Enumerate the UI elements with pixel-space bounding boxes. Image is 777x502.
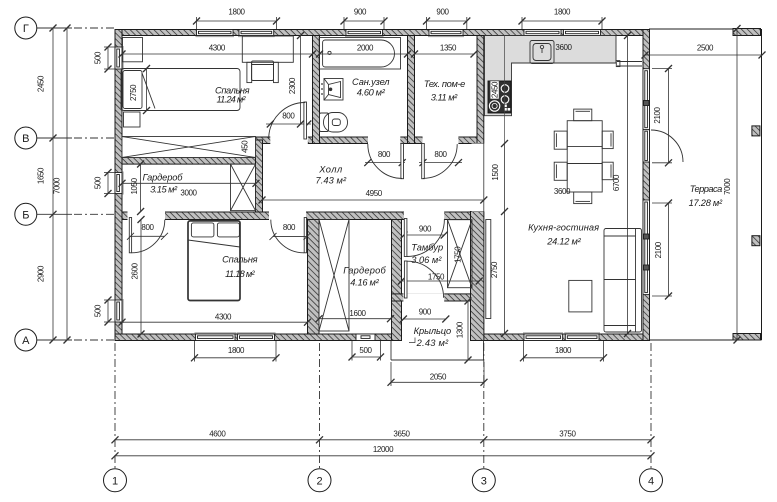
svg-text:7000: 7000 (53, 177, 62, 194)
svg-text:1600: 1600 (349, 309, 366, 318)
svg-text:Б: Б (22, 209, 29, 221)
svg-text:2500: 2500 (697, 44, 714, 53)
svg-text:Терраса: Терраса (690, 184, 723, 194)
svg-text:2050: 2050 (430, 373, 447, 382)
svg-text:В: В (22, 133, 29, 145)
svg-text:3600: 3600 (555, 43, 572, 52)
svg-text:12000: 12000 (373, 445, 394, 454)
svg-text:1750: 1750 (428, 273, 445, 282)
svg-text:4300: 4300 (209, 44, 226, 53)
svg-text:1800: 1800 (228, 346, 245, 355)
svg-text:1750: 1750 (453, 246, 462, 263)
svg-text:17.28 м²: 17.28 м² (689, 198, 723, 208)
svg-text:500: 500 (94, 304, 103, 317)
svg-text:11.24 м²: 11.24 м² (217, 95, 247, 105)
svg-text:800: 800 (283, 223, 296, 232)
svg-text:3650: 3650 (393, 429, 410, 438)
svg-text:1500: 1500 (491, 163, 500, 180)
svg-text:Тех. пом-е: Тех. пом-е (424, 79, 466, 89)
svg-text:Тамбур: Тамбур (411, 243, 443, 253)
svg-text:Крыльцо: Крыльцо (414, 326, 452, 336)
svg-text:500: 500 (359, 346, 372, 355)
svg-text:Гардероб: Гардероб (143, 172, 184, 182)
svg-text:1: 1 (112, 475, 118, 487)
svg-text:7.43 м²: 7.43 м² (316, 176, 347, 186)
svg-text:3000: 3000 (180, 188, 197, 197)
svg-text:3.11 м²: 3.11 м² (431, 93, 458, 103)
svg-text:900: 900 (419, 308, 432, 317)
svg-text:2600: 2600 (131, 262, 140, 279)
svg-text:11.18 м²: 11.18 м² (225, 269, 255, 279)
svg-text:800: 800 (282, 111, 295, 120)
svg-text:800: 800 (434, 150, 447, 159)
svg-text:4950: 4950 (366, 189, 383, 198)
svg-text:4600: 4600 (209, 429, 226, 438)
svg-text:500: 500 (94, 176, 103, 189)
svg-text:3: 3 (481, 475, 487, 487)
svg-text:24.12 м²: 24.12 м² (546, 236, 581, 246)
svg-text:7000: 7000 (723, 178, 732, 195)
svg-text:Спальня: Спальня (222, 255, 258, 265)
svg-text:900: 900 (354, 8, 367, 17)
svg-text:4: 4 (648, 475, 654, 487)
svg-text:800: 800 (378, 150, 391, 159)
svg-text:Холл: Холл (318, 164, 343, 174)
svg-text:1800: 1800 (554, 8, 571, 17)
svg-text:4300: 4300 (215, 313, 232, 322)
svg-text:1650: 1650 (37, 167, 46, 184)
svg-text:4.16 м²: 4.16 м² (350, 278, 379, 288)
svg-text:2.43 м²: 2.43 м² (416, 338, 449, 348)
svg-text:900: 900 (436, 8, 449, 17)
svg-text:2100: 2100 (654, 241, 663, 258)
svg-text:2750: 2750 (129, 84, 138, 101)
svg-text:1800: 1800 (555, 346, 572, 355)
svg-text:3750: 3750 (559, 429, 576, 438)
svg-text:3.15 м²: 3.15 м² (150, 184, 178, 194)
svg-text:3600: 3600 (554, 187, 571, 196)
svg-text:800: 800 (141, 223, 154, 232)
svg-text:2450: 2450 (491, 81, 500, 98)
svg-text:900: 900 (419, 225, 432, 234)
svg-text:4.60 м²: 4.60 м² (357, 87, 386, 97)
svg-text:2300: 2300 (288, 77, 297, 94)
svg-text:1300: 1300 (456, 321, 465, 338)
svg-text:1800: 1800 (228, 8, 245, 17)
svg-text:Кухня-гостиная: Кухня-гостиная (528, 223, 599, 233)
svg-text:2900: 2900 (37, 265, 46, 282)
svg-text:2000: 2000 (357, 44, 374, 53)
svg-text:450: 450 (241, 140, 250, 153)
svg-text:Г: Г (23, 23, 29, 35)
svg-text:1050: 1050 (130, 177, 139, 194)
svg-text:2100: 2100 (653, 106, 662, 123)
svg-text:Сан.узел: Сан.узел (352, 77, 390, 87)
svg-text:3.06 м²: 3.06 м² (411, 255, 442, 265)
svg-text:Гардероб: Гардероб (343, 265, 386, 275)
svg-text:А: А (22, 335, 30, 347)
svg-text:1350: 1350 (440, 44, 457, 53)
svg-text:500: 500 (94, 51, 103, 64)
svg-text:2750: 2750 (490, 261, 499, 278)
svg-text:2450: 2450 (37, 75, 46, 92)
svg-text:6700: 6700 (612, 174, 621, 191)
svg-text:2: 2 (316, 475, 322, 487)
